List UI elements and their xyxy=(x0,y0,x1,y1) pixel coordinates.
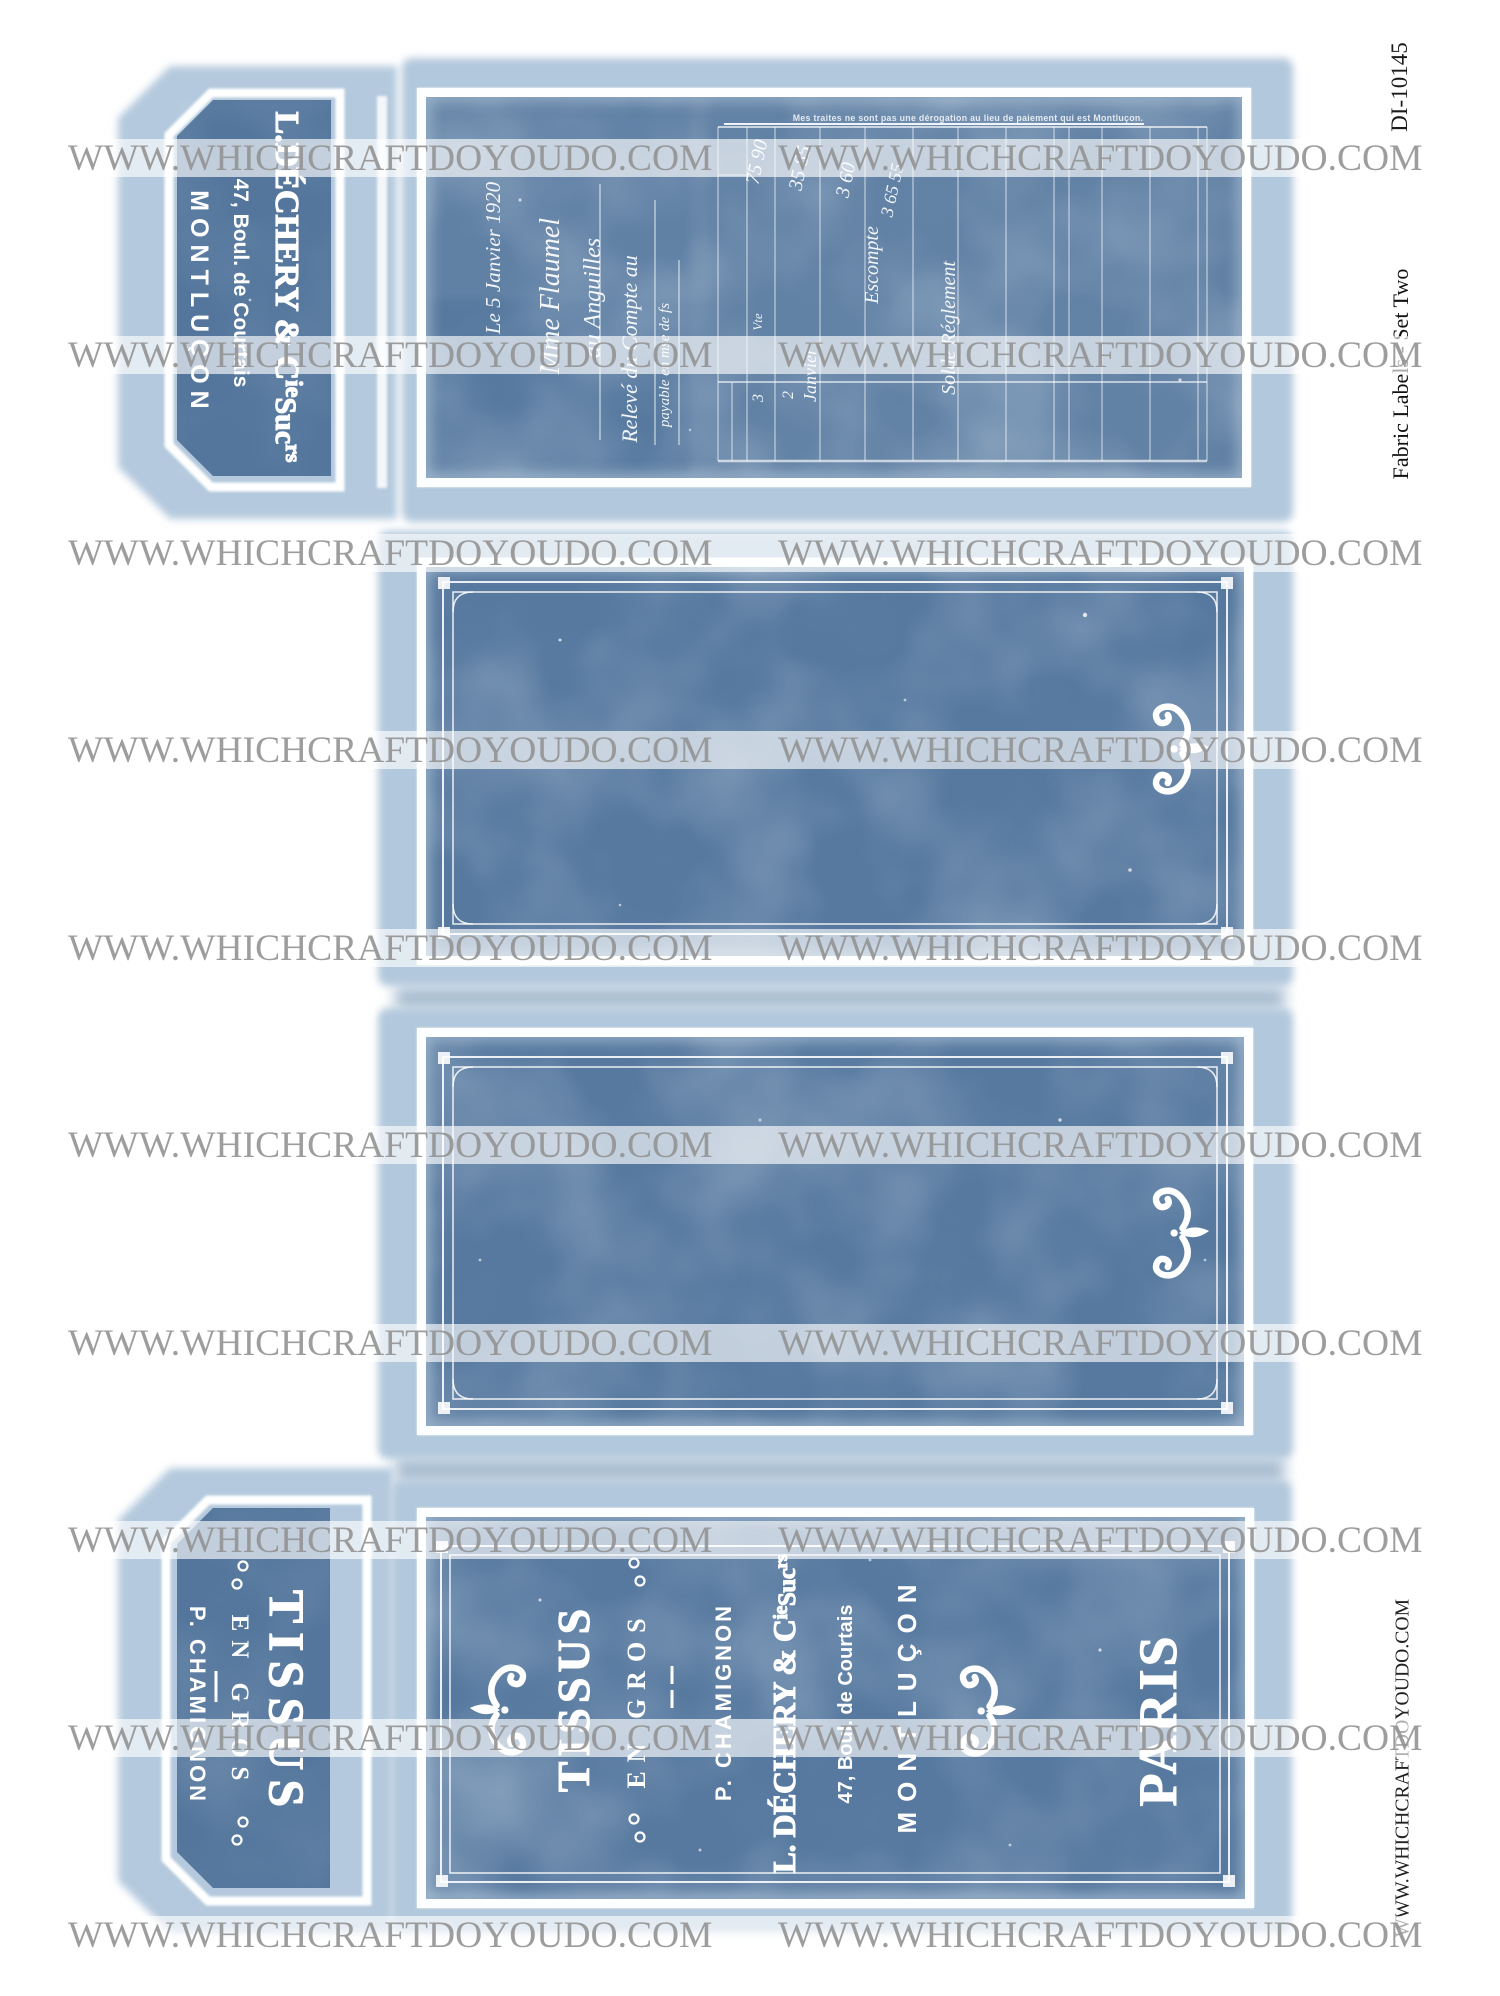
svg-text:3: 3 xyxy=(750,394,767,403)
svg-text:2: 2 xyxy=(780,391,797,399)
svg-text:Le 5 Janvier 1920: Le 5 Janvier 1920 xyxy=(481,181,505,335)
svg-text:Mes traites ne sont pas une dé: Mes traites ne sont pas une dérogation a… xyxy=(793,113,1144,123)
svg-text:P. CHAMIGNON: P. CHAMIGNON xyxy=(711,1603,736,1801)
svg-text:Vte: Vte xyxy=(750,313,765,331)
svg-text:EN GROS: EN GROS xyxy=(622,1609,651,1788)
svg-text:Escompte: Escompte xyxy=(861,226,883,305)
svg-text:P. CHAMIGNON: P. CHAMIGNON xyxy=(185,1606,210,1804)
svg-text:EN GROS: EN GROS xyxy=(226,1615,253,1790)
svg-text:TISSUS: TISSUS xyxy=(548,1604,599,1793)
svg-text:MONTLUÇON: MONTLUÇON xyxy=(185,190,213,415)
svg-text:47, Boul. de Courtais: 47, Boul. de Courtais xyxy=(835,1605,857,1804)
svg-text:MONTLUÇON: MONTLUÇON xyxy=(892,1575,922,1834)
svg-text:TISSUS: TISSUS xyxy=(259,1590,315,1816)
